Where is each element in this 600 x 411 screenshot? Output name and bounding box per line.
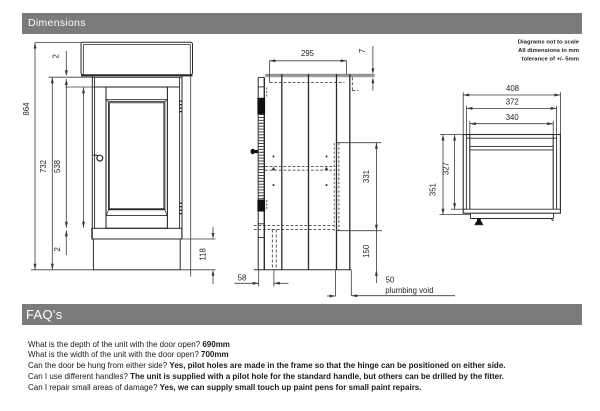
svg-text:732: 732 <box>39 160 48 173</box>
svg-text:351: 351 <box>429 183 438 196</box>
svg-text:Diagrams not to scale: Diagrams not to scale <box>518 40 580 46</box>
svg-text:295: 295 <box>301 49 315 58</box>
svg-text:118: 118 <box>198 248 207 260</box>
svg-text:408: 408 <box>506 84 519 93</box>
svg-text:tolerance of +/- 5mm: tolerance of +/- 5mm <box>522 57 579 63</box>
svg-text:2: 2 <box>52 54 61 58</box>
svg-text:331: 331 <box>362 170 371 183</box>
svg-text:All dimensions in mm: All dimensions in mm <box>518 48 579 54</box>
svg-text:340: 340 <box>506 113 520 122</box>
svg-text:7: 7 <box>358 49 367 53</box>
svg-text:538: 538 <box>53 160 62 173</box>
svg-text:864: 864 <box>22 102 31 116</box>
svg-text:58: 58 <box>238 274 247 283</box>
svg-text:plumbing void: plumbing void <box>385 286 433 295</box>
svg-text:150: 150 <box>362 244 371 258</box>
svg-text:50: 50 <box>386 275 395 284</box>
svg-text:372: 372 <box>506 98 519 107</box>
svg-text:2: 2 <box>53 247 62 251</box>
